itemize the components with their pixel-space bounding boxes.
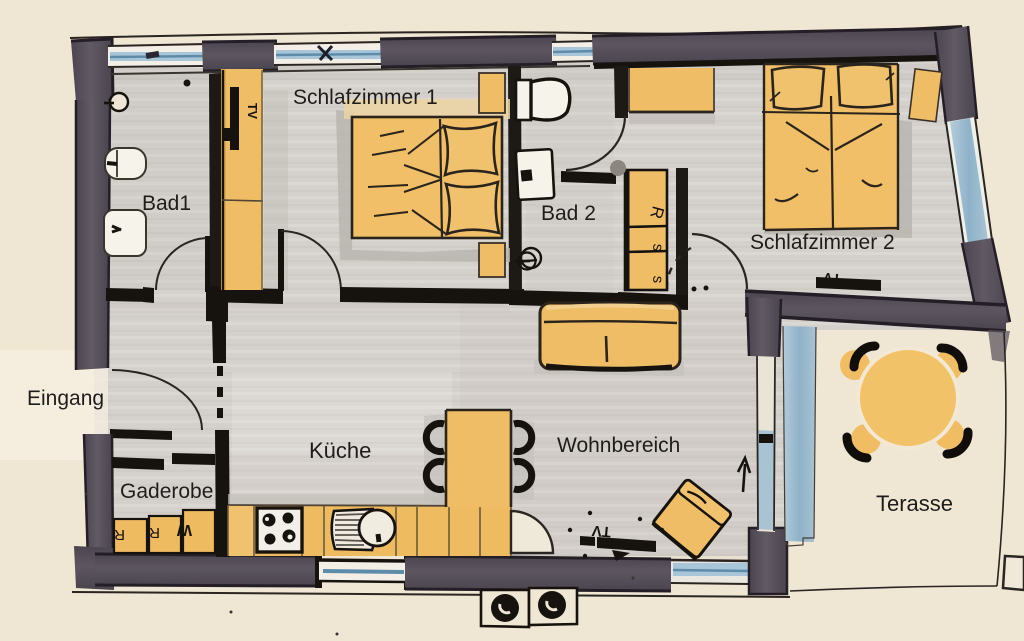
svg-text:Bad 2: Bad 2 bbox=[541, 202, 596, 225]
svg-text:Schlafzimmer 1: Schlafzimmer 1 bbox=[293, 86, 438, 109]
svg-text:Küche: Küche bbox=[309, 438, 371, 463]
svg-text:W: W bbox=[176, 521, 192, 538]
svg-text:Gaderobe: Gaderobe bbox=[120, 480, 213, 503]
svg-text:R: R bbox=[149, 524, 160, 541]
svg-text:TV: TV bbox=[245, 103, 259, 120]
svg-text:Wohnbereich: Wohnbereich bbox=[557, 434, 680, 457]
svg-text:TV: TV bbox=[822, 270, 842, 288]
svg-text:Schlafzimmer 2: Schlafzimmer 2 bbox=[750, 231, 895, 254]
svg-text:Terasse: Terasse bbox=[876, 491, 953, 516]
svg-text:s: s bbox=[649, 275, 667, 284]
svg-text:R: R bbox=[114, 526, 125, 543]
svg-text:s: s bbox=[649, 243, 667, 252]
svg-text:Eingang: Eingang bbox=[27, 387, 104, 410]
svg-text:Bad1: Bad1 bbox=[142, 192, 191, 215]
svg-text:TV: TV bbox=[591, 522, 612, 541]
